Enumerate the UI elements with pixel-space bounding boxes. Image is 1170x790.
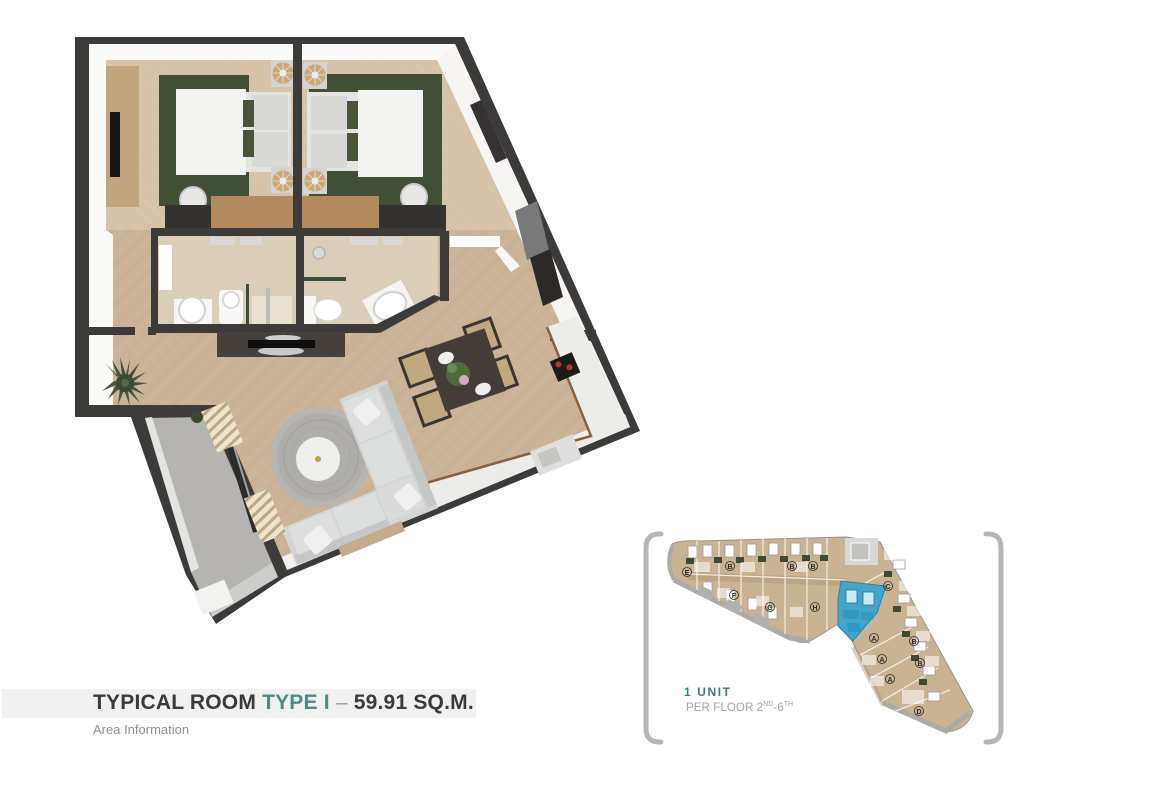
svg-text:B: B (917, 661, 922, 668)
svg-text:B: B (911, 639, 916, 646)
svg-text:A: A (879, 657, 884, 664)
svg-text:B: B (810, 564, 815, 571)
svg-text:F: F (732, 593, 737, 600)
svg-text:H: H (812, 605, 817, 612)
svg-text:D: D (916, 709, 921, 716)
svg-text:B: B (789, 564, 794, 571)
svg-text:A: A (871, 636, 876, 643)
svg-text:A: A (887, 677, 892, 684)
svg-text:E: E (685, 570, 690, 577)
svg-text:C: C (885, 584, 890, 591)
svg-text:B: B (727, 564, 732, 571)
svg-text:G: G (767, 605, 773, 612)
